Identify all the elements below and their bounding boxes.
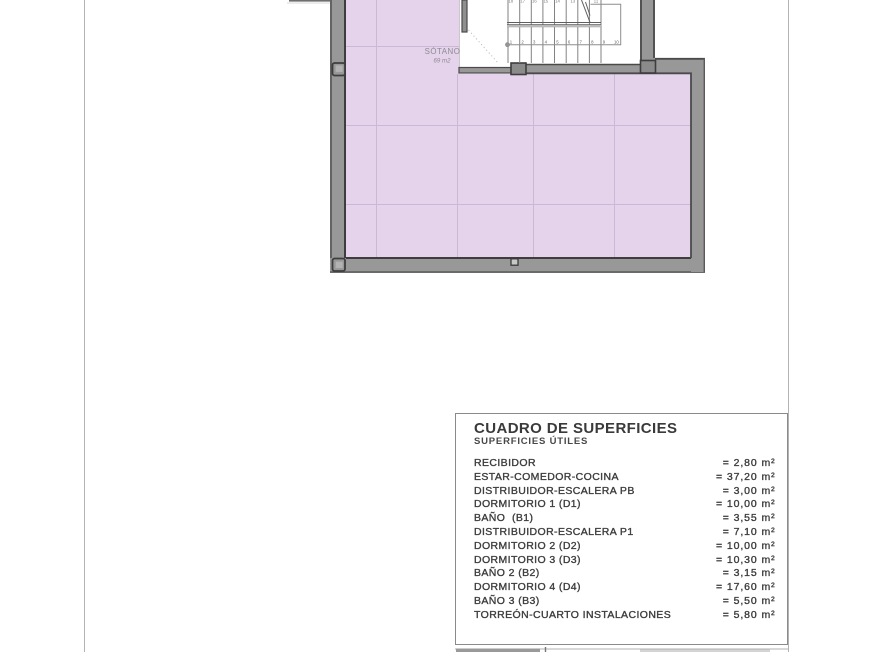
svg-text:11: 11 — [594, 0, 599, 3]
svg-text:69 m2: 69 m2 — [434, 58, 452, 65]
svg-text:9: 9 — [603, 39, 606, 44]
svg-text:2: 2 — [521, 39, 524, 44]
svg-text:4: 4 — [545, 39, 548, 44]
svg-text:14: 14 — [555, 0, 560, 3]
svg-text:SÓTANO: SÓTANO — [425, 47, 461, 56]
svg-text:8: 8 — [591, 39, 594, 44]
svg-text:16: 16 — [532, 0, 537, 3]
svg-text:17: 17 — [520, 0, 525, 3]
svg-text:1: 1 — [510, 39, 513, 44]
svg-text:13: 13 — [571, 0, 576, 3]
svg-text:3: 3 — [533, 39, 536, 44]
svg-text:15: 15 — [544, 0, 549, 3]
svg-text:6: 6 — [568, 39, 571, 44]
svg-text:7: 7 — [580, 39, 583, 44]
svg-text:18: 18 — [509, 0, 514, 3]
svg-text:10: 10 — [614, 39, 619, 44]
svg-text:5: 5 — [556, 39, 559, 44]
